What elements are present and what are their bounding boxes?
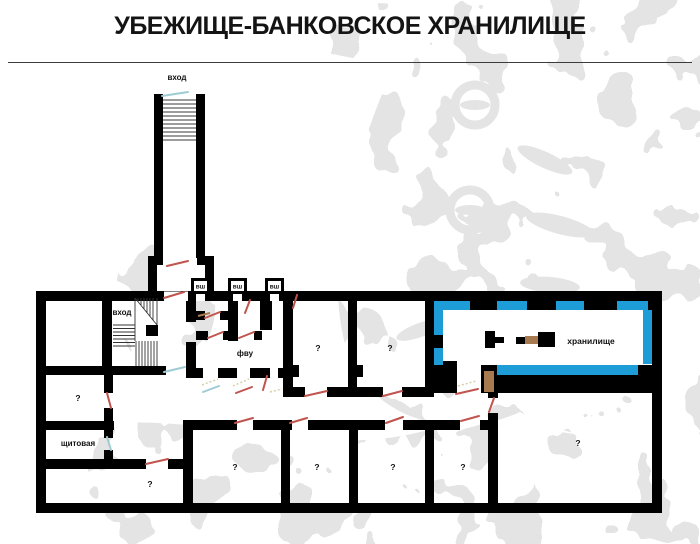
vent-shaft-label-3: вш: [270, 284, 279, 291]
label-unknown-room-9: ?: [575, 438, 580, 448]
vent-shaft-box-1: вш: [193, 280, 209, 293]
label-vault: хранилище: [567, 336, 615, 346]
vault-door: [484, 371, 494, 392]
label-unknown-room-4: ?: [147, 479, 152, 489]
vent-shaft-boxes: вш вш вш: [193, 280, 283, 293]
vault-lock-bar: [525, 336, 538, 344]
label-unknown-room-6: ?: [314, 462, 319, 472]
vent-shaft-label-2: вш: [233, 284, 242, 291]
vent-shaft-box-3: вш: [267, 280, 283, 293]
label-entrance-hall: вход: [112, 308, 131, 317]
vent-shaft-box-2: вш: [230, 280, 246, 293]
page: вш вш вш: [0, 0, 700, 544]
page-title: УБЕЖИЩЕ-БАНКОВСКОЕ ХРАНИЛИЩЕ: [0, 12, 700, 41]
label-entrance-top: вход: [167, 73, 186, 82]
vent-shaft-label-1: вш: [196, 284, 205, 291]
floor-plan-svg: вш вш вш: [0, 0, 700, 544]
label-unknown-room-7: ?: [390, 462, 395, 472]
label-unknown-room-5: ?: [232, 462, 237, 472]
label-unknown-room-8: ?: [460, 462, 465, 472]
label-unknown-room-1: ?: [75, 393, 80, 403]
label-switchboard: щитовая: [61, 439, 96, 448]
label-unknown-room-2: ?: [315, 343, 320, 353]
label-fvu: фву: [237, 349, 254, 358]
label-unknown-room-3: ?: [387, 343, 392, 353]
